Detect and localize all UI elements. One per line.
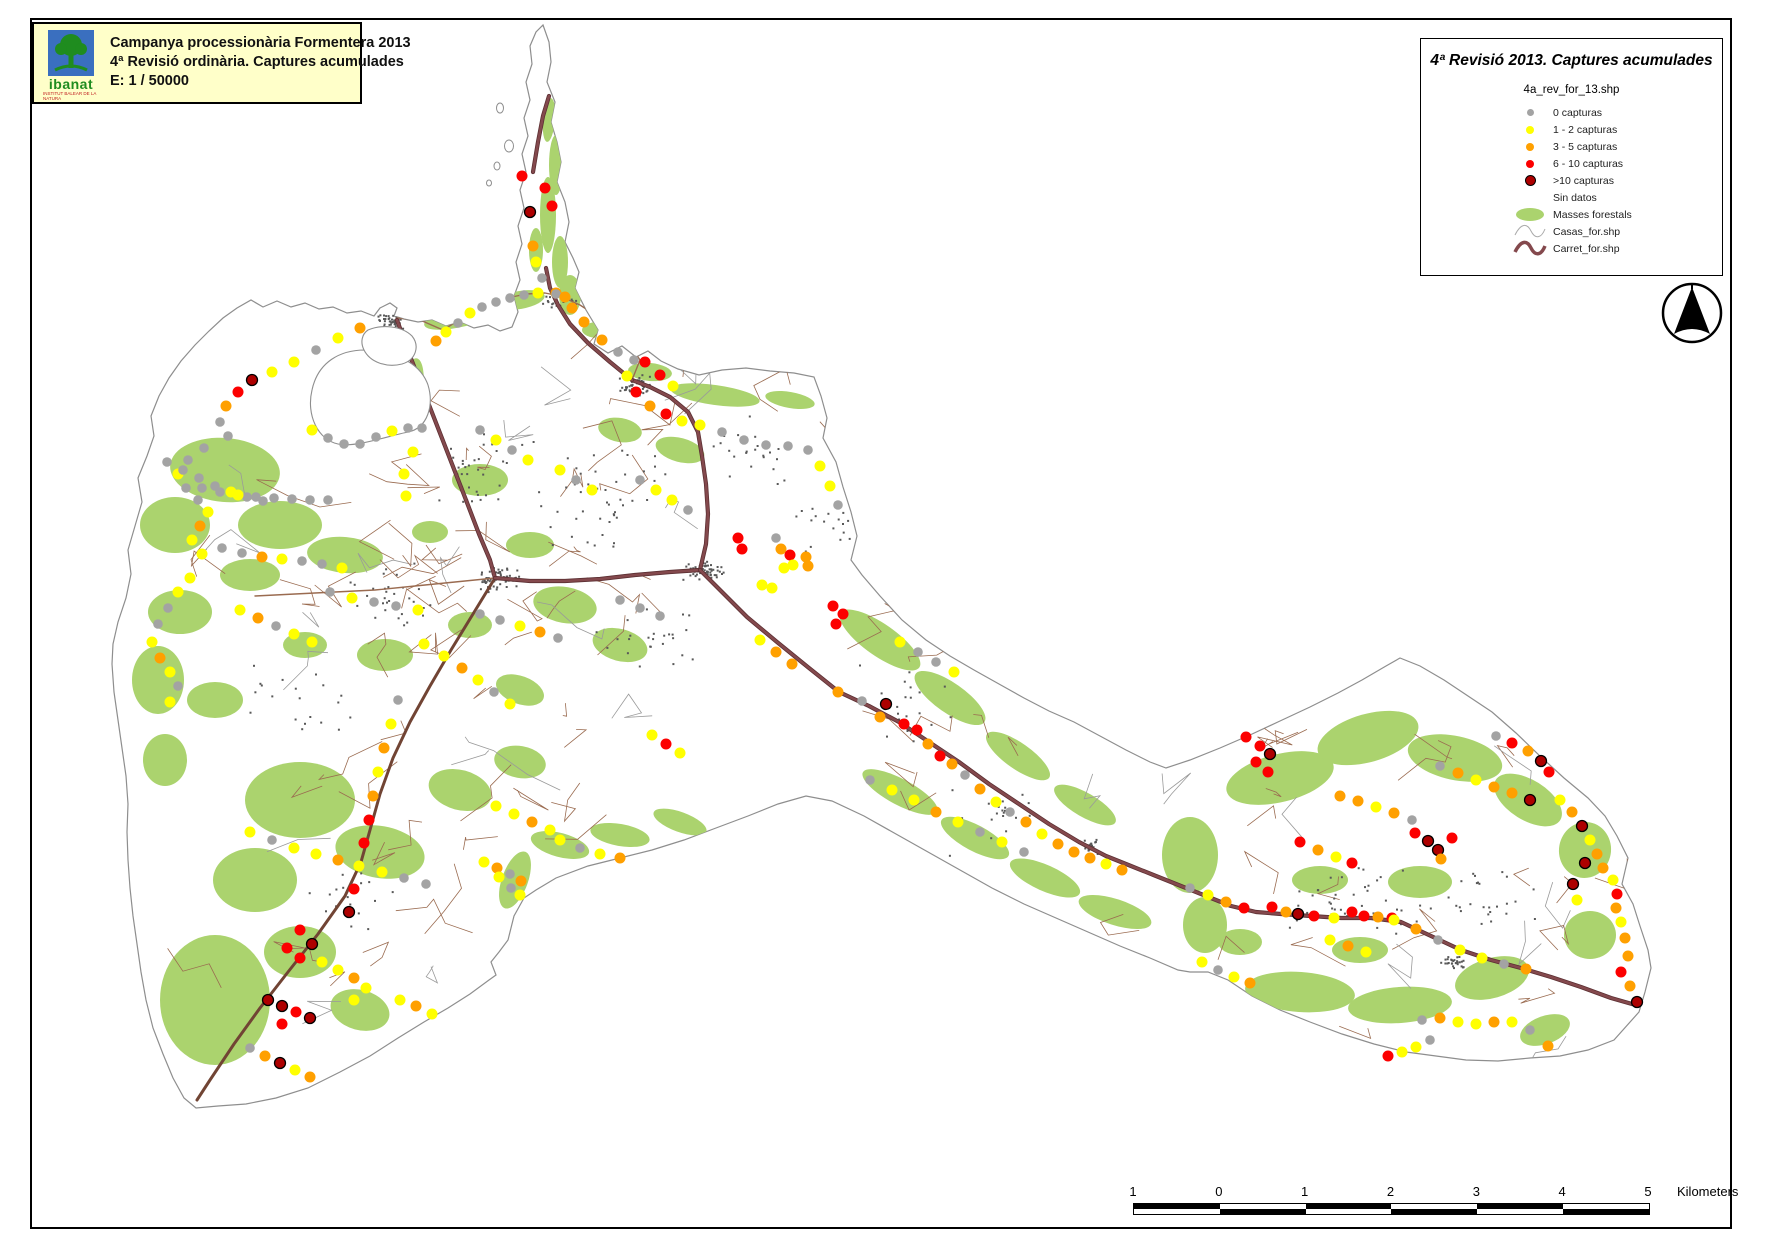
legend-item-label: Masses forestals: [1553, 209, 1632, 221]
scale-tick-label: 1: [1301, 1184, 1308, 1199]
scale-tick-label: 5: [1644, 1184, 1651, 1199]
legend-item-label: >10 capturas: [1553, 175, 1614, 187]
scale-unit-label: Kilometers: [1677, 1184, 1738, 1199]
legend-item: Masses forestals: [1421, 206, 1722, 223]
logo-text: ibanat: [49, 77, 93, 91]
legend-item-label: 6 - 10 capturas: [1553, 158, 1623, 170]
title-box: ibanat INSTITUT BALEAR DE LA NATURA Camp…: [32, 22, 362, 104]
legend-item-label: Sin datos: [1553, 192, 1597, 204]
map-title-line1: Campanya processionària Formentera 2013: [110, 34, 411, 53]
legend-dot-icon: [1526, 126, 1534, 134]
legend-item-label: Carret_for.shp: [1553, 243, 1620, 255]
scale-bar: 1012345Kilometers: [1080, 1184, 1760, 1224]
map-scale-text: E: 1 / 50000: [110, 72, 411, 91]
legend-item-label: 1 - 2 capturas: [1553, 124, 1617, 136]
north-arrow-icon: [1660, 281, 1724, 345]
scale-tick-label: 0: [1215, 1184, 1222, 1199]
legend-dot-icon: [1526, 143, 1534, 151]
legend-item-label: Casas_for.shp: [1553, 226, 1620, 238]
forest-swatch-icon: [1516, 208, 1544, 221]
legend-dot-icon: [1525, 175, 1536, 186]
legend-item: Carret_for.shp: [1421, 240, 1722, 257]
north-arrow: [1660, 281, 1724, 350]
scale-tick-label: 3: [1473, 1184, 1480, 1199]
ibanat-tree-icon: [48, 30, 94, 76]
scale-tick-label: 4: [1559, 1184, 1566, 1199]
scale-tick-label: 2: [1387, 1184, 1394, 1199]
legend-item: Sin datos: [1421, 189, 1722, 206]
scale-tick-label: 1: [1129, 1184, 1136, 1199]
legend-dot-icon: [1526, 160, 1534, 168]
legend-dot-icon: [1527, 109, 1534, 116]
legend-items: 0 capturas1 - 2 capturas3 - 5 capturas6 …: [1421, 104, 1722, 257]
legend-item: 3 - 5 capturas: [1421, 138, 1722, 155]
scale-bar-segments: [1133, 1203, 1650, 1215]
thick-line-icon: [1513, 238, 1547, 260]
legend-item: 1 - 2 capturas: [1421, 121, 1722, 138]
logo-subtext: INSTITUT BALEAR DE LA NATURA: [43, 91, 99, 101]
legend-item: Casas_for.shp: [1421, 223, 1722, 240]
legend-item: 0 capturas: [1421, 104, 1722, 121]
legend-item: 6 - 10 capturas: [1421, 155, 1722, 172]
legend-layer-name: 4a_rev_for_13.shp: [1421, 84, 1722, 96]
legend-item-label: 0 capturas: [1553, 107, 1602, 119]
legend-box: 4ª Revisió 2013. Captures acumulades 4a_…: [1420, 38, 1723, 276]
map-title-line2: 4ª Revisió ordinària. Captures acumulade…: [110, 53, 411, 72]
legend-title: 4ª Revisió 2013. Captures acumulades: [1421, 52, 1722, 70]
legend-item: >10 capturas: [1421, 172, 1722, 189]
ibanat-logo: ibanat INSTITUT BALEAR DE LA NATURA: [42, 30, 100, 101]
legend-item-label: 3 - 5 capturas: [1553, 141, 1617, 153]
